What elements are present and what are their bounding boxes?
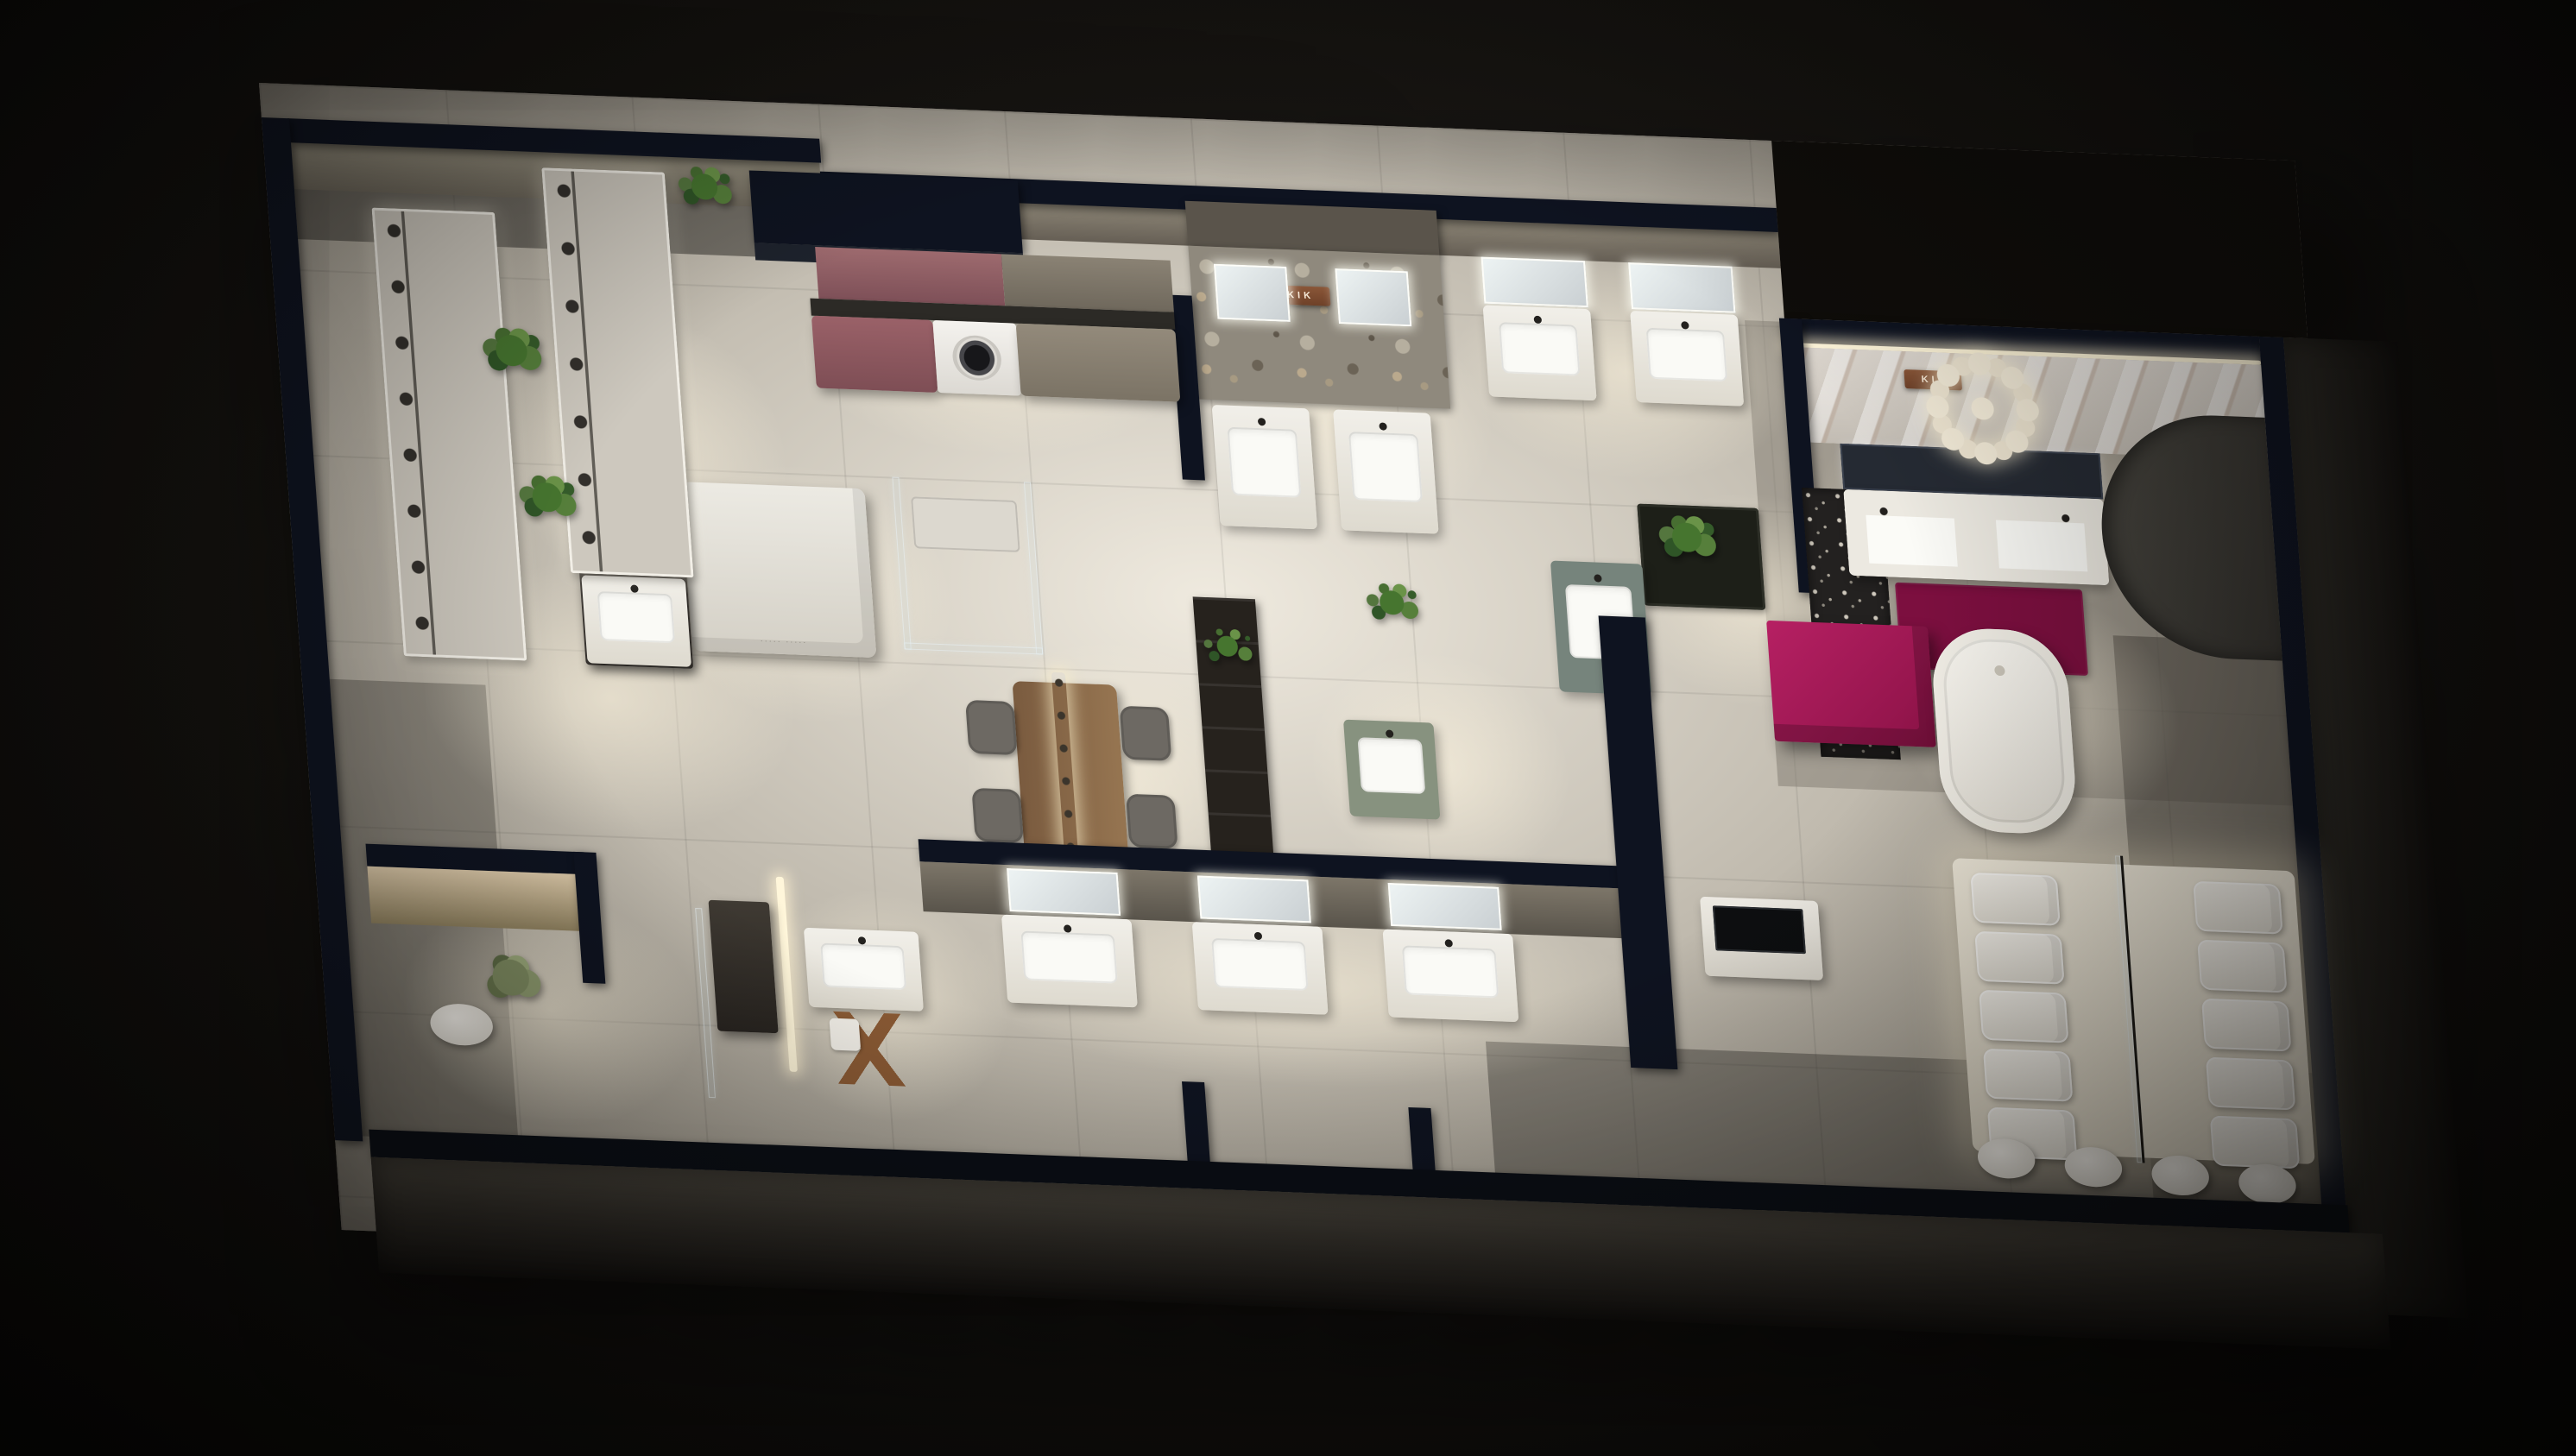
towel-vanity xyxy=(804,928,924,1012)
toilet xyxy=(2201,999,2292,1052)
suite-double-vanity xyxy=(1843,489,2109,585)
stone-mirror-1 xyxy=(1214,264,1291,322)
toilet xyxy=(1979,990,2069,1043)
living-green-wall xyxy=(1343,567,1465,720)
green-vanity xyxy=(1343,720,1440,820)
corridor-vanity-1 xyxy=(1483,306,1597,401)
toilet xyxy=(1974,931,2065,985)
island-vanity xyxy=(581,575,691,667)
corridor-mirror-1 xyxy=(1481,257,1588,308)
shower-display-panel-a xyxy=(371,208,527,661)
stone-vanity-2 xyxy=(1333,409,1438,533)
toilet xyxy=(2210,1116,2301,1169)
media-screen xyxy=(1713,905,1806,954)
toilet xyxy=(2206,1057,2296,1111)
stone-mirror-2 xyxy=(1335,268,1411,326)
toilet xyxy=(2193,881,2283,935)
laundry-cabinet-rose xyxy=(811,316,938,393)
towel-ladder xyxy=(824,1011,915,1087)
partition-mirror-3 xyxy=(1388,883,1502,930)
bubble-chandelier xyxy=(1925,353,2040,464)
partition-vanity-3 xyxy=(1382,930,1518,1023)
door-stub-1 xyxy=(1182,1081,1210,1170)
cubicle-glass-right xyxy=(1024,482,1043,654)
chair xyxy=(1120,706,1172,761)
toilet xyxy=(1983,1049,2074,1102)
corridor-vanity-2 xyxy=(1630,311,1744,407)
laundry-beige-wall xyxy=(1001,254,1174,312)
storage-block xyxy=(749,170,1023,253)
floor-plan: KIKKIK····· ····· xyxy=(259,83,2377,1308)
partition-vanity-1 xyxy=(1001,915,1138,1008)
laundry-cabinet-beige xyxy=(1016,324,1181,402)
chair xyxy=(971,788,1024,843)
partition-vanity-2 xyxy=(1192,922,1329,1015)
fuchsia-console xyxy=(1766,621,1936,747)
reception-desk: ····· ····· xyxy=(681,482,877,658)
shower-tray xyxy=(911,496,1020,552)
partition-mirror-1 xyxy=(1007,868,1121,916)
nook-cabinet xyxy=(708,900,778,1034)
washing-machine xyxy=(932,320,1020,396)
corridor-mirror-2 xyxy=(1628,262,1735,313)
stone-vanity-1 xyxy=(1212,405,1317,529)
chair xyxy=(1126,794,1178,849)
tan-room-face xyxy=(367,867,590,932)
laundry-rose-wall xyxy=(815,247,1005,306)
outside-top-right xyxy=(1771,141,2308,338)
toilet xyxy=(1970,873,2061,926)
scene: KIKKIK····· ····· xyxy=(0,0,2576,1456)
chair xyxy=(965,700,1018,755)
planter-bed xyxy=(1637,504,1765,610)
left-wall xyxy=(262,117,363,1141)
partition-mirror-2 xyxy=(1197,876,1311,923)
toilet xyxy=(2197,940,2288,993)
